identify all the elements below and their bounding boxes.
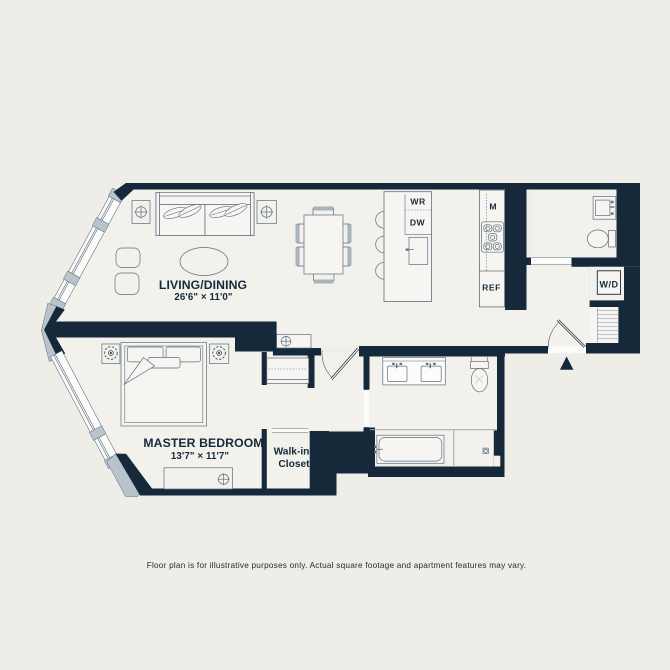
svg-text:Floor plan is for illustrative: Floor plan is for illustrative purposes …: [147, 561, 527, 570]
svg-text:DW: DW: [410, 218, 426, 228]
svg-text:MASTER BEDROOM: MASTER BEDROOM: [143, 436, 263, 450]
svg-text:26'6" × 11'0": 26'6" × 11'0": [174, 292, 232, 303]
svg-text:REF: REF: [482, 283, 501, 293]
svg-text:LIVING/DINING: LIVING/DINING: [159, 278, 247, 292]
svg-text:Walk-in: Walk-in: [274, 446, 310, 457]
svg-text:WR: WR: [410, 196, 426, 206]
svg-text:W/D: W/D: [600, 279, 619, 289]
svg-text:13'7" × 11'7": 13'7" × 11'7": [171, 451, 229, 462]
svg-text:M: M: [489, 202, 497, 212]
svg-text:Closet: Closet: [278, 459, 310, 470]
